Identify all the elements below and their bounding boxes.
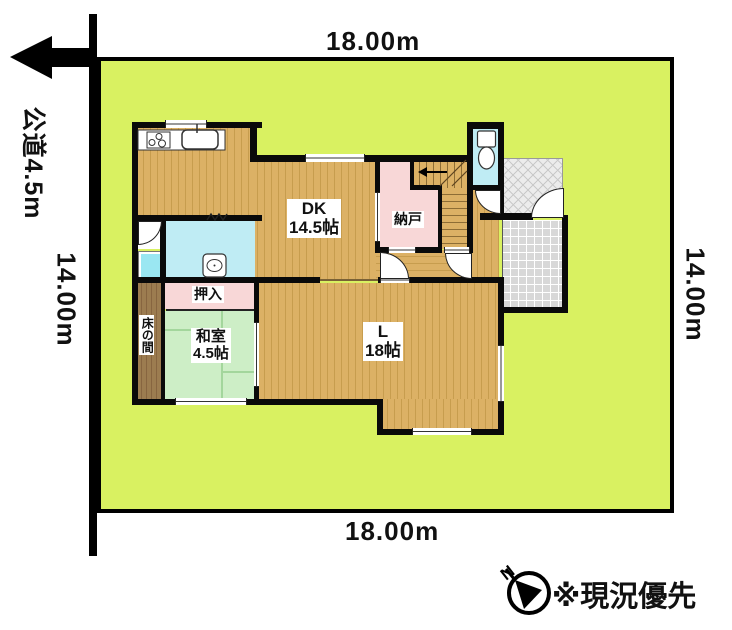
dk-name: DK xyxy=(289,200,339,219)
label-nando: 納戸 xyxy=(392,211,424,228)
fixtures-layer xyxy=(0,0,732,630)
north-compass-icon: N xyxy=(498,560,562,624)
living-name: L xyxy=(365,323,401,342)
label-washitsu: 和室 4.5帖 xyxy=(191,328,231,363)
sink-icon xyxy=(182,130,218,149)
floor-plan-page: 18.00m 18.00m 14.00m 14.00m 公道4.5m xyxy=(0,0,732,630)
label-tokonoma: 床の間 xyxy=(139,315,154,355)
note-text: ※現況優先 xyxy=(552,573,696,615)
toilet-icon xyxy=(478,131,496,147)
label-oshiire: 押入 xyxy=(192,286,224,303)
label-living: L 18帖 xyxy=(363,322,403,361)
stair-winder-line xyxy=(452,171,467,186)
dk-size: 14.5帖 xyxy=(289,219,339,238)
label-dk: DK 14.5帖 xyxy=(287,199,341,238)
washitsu-name: 和室 xyxy=(193,329,229,346)
washitsu-size: 4.5帖 xyxy=(193,346,229,363)
accordion-door-icon xyxy=(207,214,227,220)
living-size: 18帖 xyxy=(365,342,401,361)
